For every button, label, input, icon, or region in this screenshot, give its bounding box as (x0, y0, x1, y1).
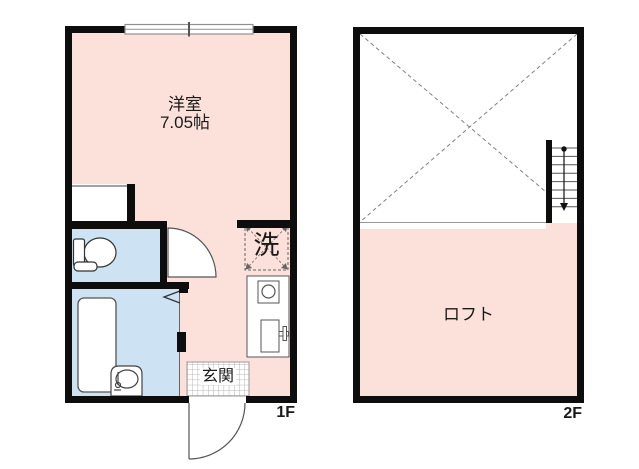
entrance-door-swing (189, 403, 245, 459)
wall-segment (65, 221, 167, 229)
loft-edge-strip (360, 223, 546, 229)
entrance-label: 玄関 (187, 368, 249, 386)
floorplan-canvas: 洋室 7.05帖 洗 玄関 1F ロフト 2F (0, 0, 639, 469)
washbasin-icon (111, 366, 142, 396)
wall-segment (177, 332, 186, 352)
window-icon (125, 22, 253, 37)
wall-segment (65, 396, 189, 403)
wall-segment (353, 27, 584, 34)
wall-segment (290, 26, 297, 403)
wall-segment (127, 184, 135, 222)
floorplan-drawing (0, 0, 639, 469)
floor-1f-label: 1F (259, 404, 295, 422)
wall-segment (179, 282, 188, 293)
floor-2f-plan (353, 27, 584, 403)
wall-segment (353, 396, 584, 403)
void-area (360, 34, 577, 223)
loft-label: ロフト (418, 300, 519, 325)
wall-segment (237, 220, 297, 228)
wall-segment (546, 140, 552, 223)
stove-icon (258, 281, 279, 303)
washer-label: 洗 (245, 231, 288, 259)
room-name: 洋室 (105, 96, 265, 114)
alcove (72, 184, 127, 222)
wall-segment (65, 26, 72, 403)
bathtub-icon (78, 298, 116, 392)
room-label: 洋室 7.05帖 (105, 96, 265, 132)
floor-2f-label: 2F (546, 405, 582, 423)
wall-segment (577, 27, 584, 403)
room-size: 7.05帖 (105, 114, 265, 132)
wall-segment (160, 221, 167, 282)
stairs-icon (546, 140, 577, 223)
wall-segment (246, 396, 297, 403)
wall-segment (65, 26, 125, 33)
wall-segment (65, 282, 189, 289)
wall-segment (353, 27, 360, 403)
